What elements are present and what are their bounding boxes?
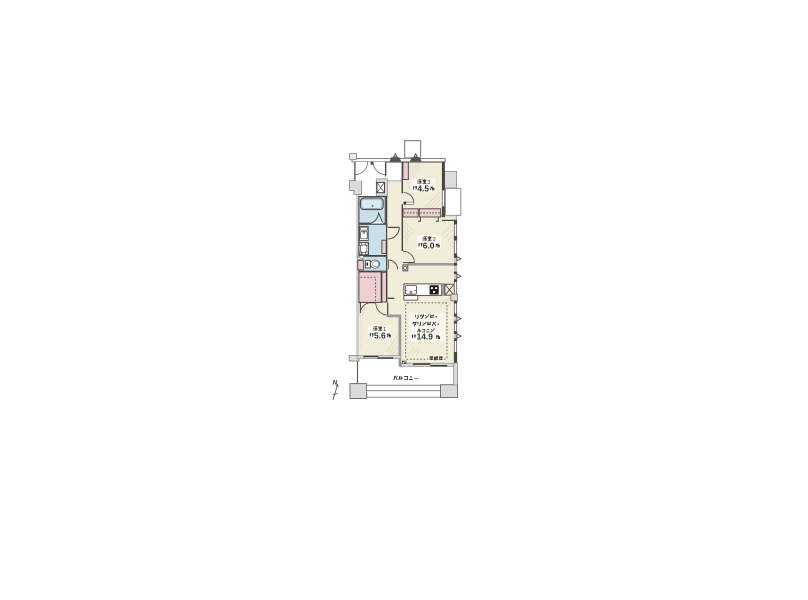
svg-text:6.0: 6.0 (423, 240, 435, 250)
svg-text:14.9: 14.9 (417, 332, 434, 342)
svg-text:5.6: 5.6 (374, 330, 386, 340)
svg-text:4.5: 4.5 (417, 183, 429, 193)
